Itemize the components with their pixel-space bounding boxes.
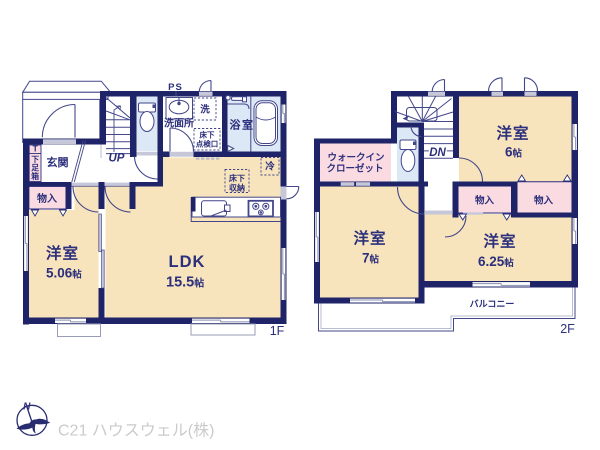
svg-text:ウォークイン: ウォークイン [327, 153, 384, 164]
svg-text:収納: 収納 [229, 183, 245, 193]
svg-text:N: N [23, 402, 31, 413]
svg-text:洗: 洗 [200, 104, 210, 116]
svg-text:冷: 冷 [265, 161, 275, 173]
svg-text:クローゼット: クローゼット [326, 163, 383, 175]
svg-text:洗面所: 洗面所 [164, 117, 194, 130]
svg-text:1F: 1F [270, 324, 285, 338]
svg-text:洋室: 洋室 [483, 232, 516, 251]
svg-text:バルコニー: バルコニー [470, 299, 515, 309]
svg-text:洋室: 洋室 [496, 124, 529, 143]
svg-text:LDK: LDK [169, 253, 206, 271]
svg-text:C21 ハウスウェル(株): C21 ハウスウェル(株) [58, 422, 214, 440]
svg-text:DN: DN [429, 147, 446, 159]
svg-text:床下: 床下 [229, 173, 245, 183]
svg-text:物入: 物入 [37, 192, 57, 205]
svg-text:洋室: 洋室 [353, 229, 386, 248]
svg-text:物入: 物入 [475, 195, 495, 207]
svg-text:浴室: 浴室 [230, 118, 255, 132]
svg-text:床下: 床下 [200, 130, 215, 140]
svg-text:洋室: 洋室 [46, 244, 79, 263]
svg-text:玄関: 玄関 [47, 155, 69, 169]
svg-text:2F: 2F [560, 322, 575, 336]
svg-text:箱: 箱 [31, 171, 39, 181]
svg-text:PS: PS [168, 82, 183, 93]
svg-text:UP: UP [109, 153, 125, 165]
svg-text:T: T [33, 144, 39, 154]
svg-text:点検口: 点検口 [196, 139, 219, 149]
svg-text:物入: 物入 [534, 195, 554, 207]
